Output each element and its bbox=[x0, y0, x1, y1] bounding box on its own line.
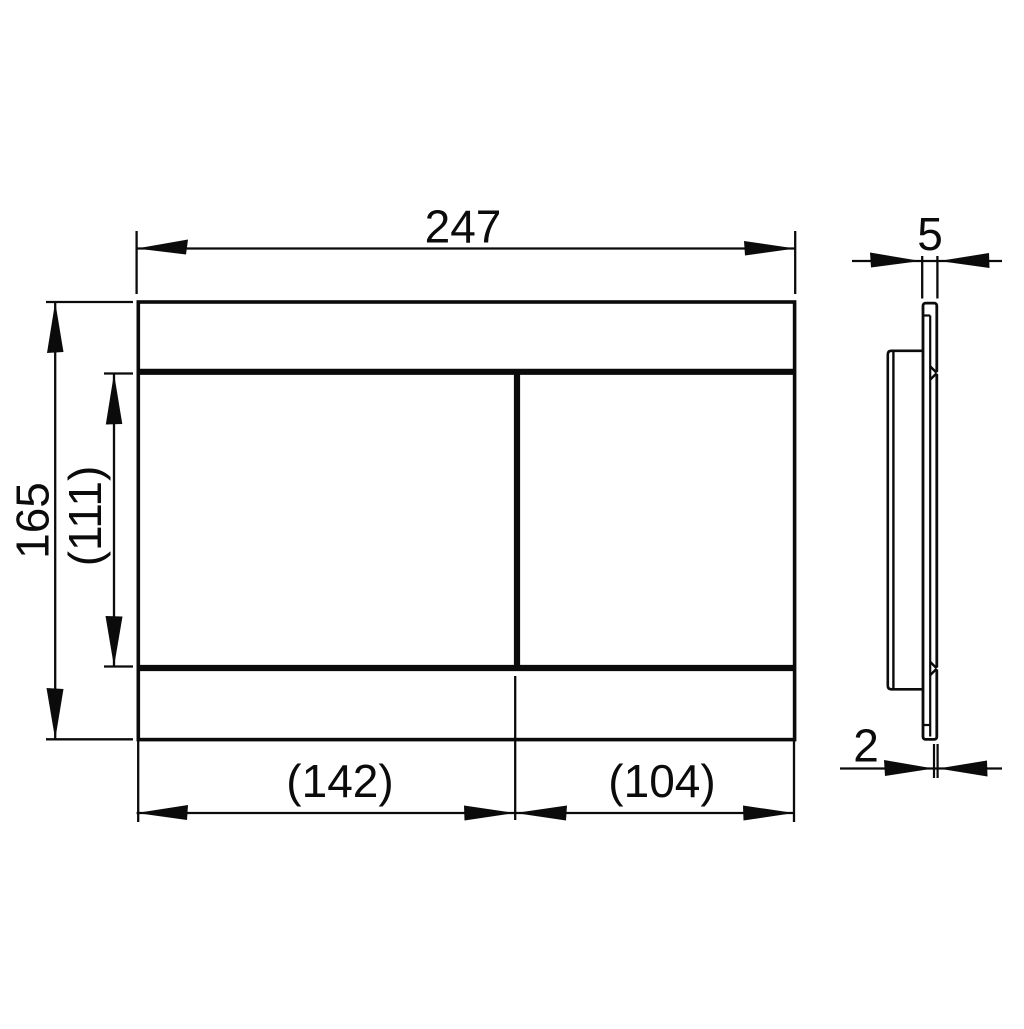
svg-text:247: 247 bbox=[425, 201, 502, 253]
svg-text:(142): (142) bbox=[286, 755, 393, 807]
svg-text:(104): (104) bbox=[608, 755, 715, 807]
svg-text:2: 2 bbox=[853, 720, 879, 772]
svg-text:(111): (111) bbox=[59, 466, 111, 567]
svg-text:165: 165 bbox=[7, 482, 59, 559]
svg-text:5: 5 bbox=[917, 208, 943, 260]
